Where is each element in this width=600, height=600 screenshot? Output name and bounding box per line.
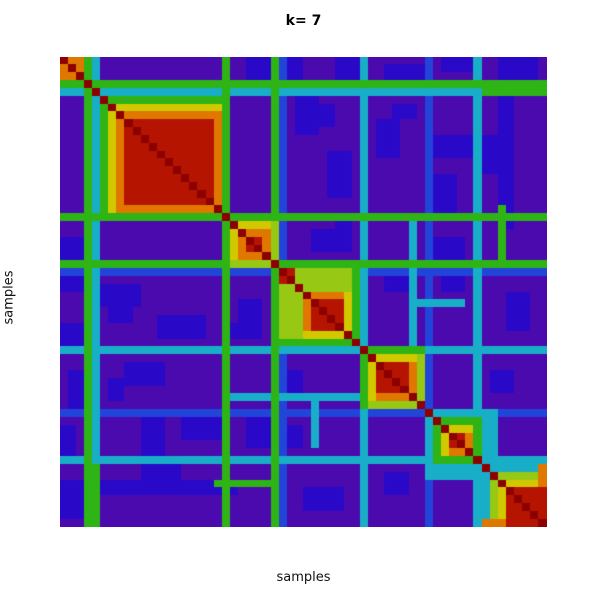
consensus-heatmap: [60, 57, 547, 527]
y-axis-label: samples: [2, 63, 17, 533]
plot-title: k= 7: [60, 13, 547, 29]
x-axis-label: samples: [60, 570, 547, 585]
consensus-matrix-figure: k= 7 samples samples: [0, 0, 600, 600]
